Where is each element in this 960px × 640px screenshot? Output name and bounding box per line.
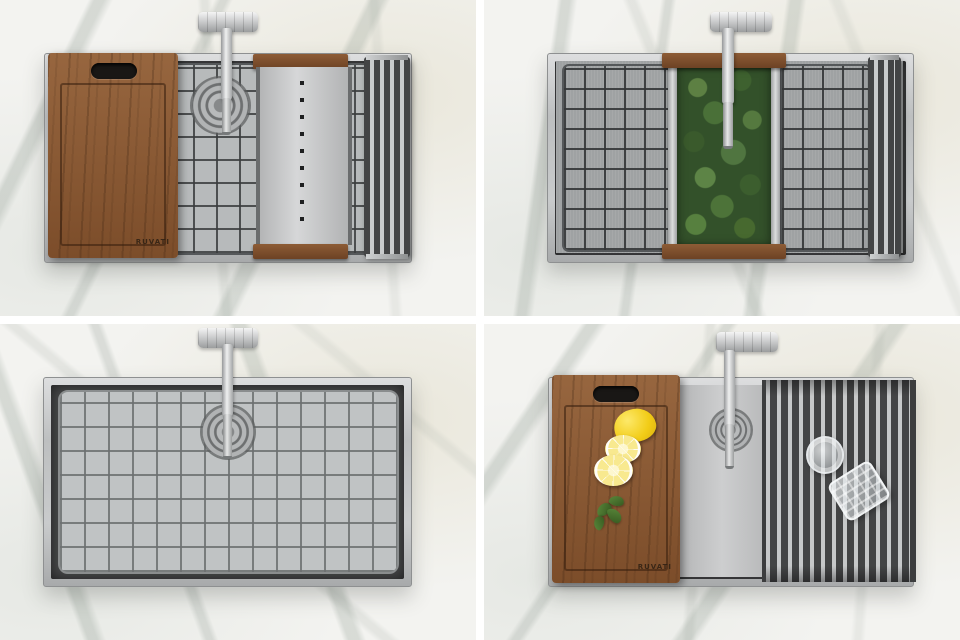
faucet-spout-tip bbox=[223, 414, 232, 459]
board-juice-groove bbox=[60, 83, 166, 246]
colander-rail bbox=[668, 66, 677, 246]
photo-sink-board-lemons-rollrack: RUVATI bbox=[484, 324, 960, 640]
photo-sink-bottom-grid bbox=[0, 324, 476, 640]
drying-grid-right bbox=[780, 64, 872, 252]
drying-grid-left bbox=[562, 64, 672, 252]
colander bbox=[256, 67, 352, 245]
faucet-spout bbox=[722, 28, 734, 104]
board-handle-cutout bbox=[593, 386, 639, 402]
faucet bbox=[716, 332, 778, 352]
lemon-slice bbox=[594, 455, 633, 486]
roll-up-rack-folded bbox=[364, 57, 410, 257]
faucet-spout-tip bbox=[725, 424, 734, 469]
faucet bbox=[710, 12, 772, 32]
glass-lid bbox=[806, 436, 844, 474]
colander-perforations bbox=[300, 81, 304, 233]
board-handle-cutout bbox=[91, 63, 137, 79]
colander-rail bbox=[771, 66, 780, 246]
rack-bars bbox=[370, 60, 404, 254]
brand-logo: RUVATI bbox=[136, 238, 170, 246]
faucet-spout-tip bbox=[723, 102, 733, 149]
cutting-board: RUVATI bbox=[48, 53, 178, 258]
faucet-spout bbox=[221, 28, 232, 100]
product-photo-collage: RUVATI bbox=[0, 0, 960, 640]
colander-wood-handle bbox=[662, 244, 786, 259]
faucet-spout bbox=[724, 350, 735, 426]
brand-logo: RUVATI bbox=[638, 563, 672, 571]
faucet-spout-tip bbox=[222, 98, 231, 135]
roll-up-rack-folded bbox=[868, 57, 901, 257]
rack-bars bbox=[874, 60, 895, 254]
photo-sink-workstation-board-colander: RUVATI bbox=[0, 0, 476, 316]
photo-sink-drying-racks-basil bbox=[484, 0, 960, 316]
colander-wood-handle bbox=[253, 244, 348, 259]
faucet-spout bbox=[222, 344, 233, 416]
photo-grid: RUVATI bbox=[0, 0, 960, 640]
